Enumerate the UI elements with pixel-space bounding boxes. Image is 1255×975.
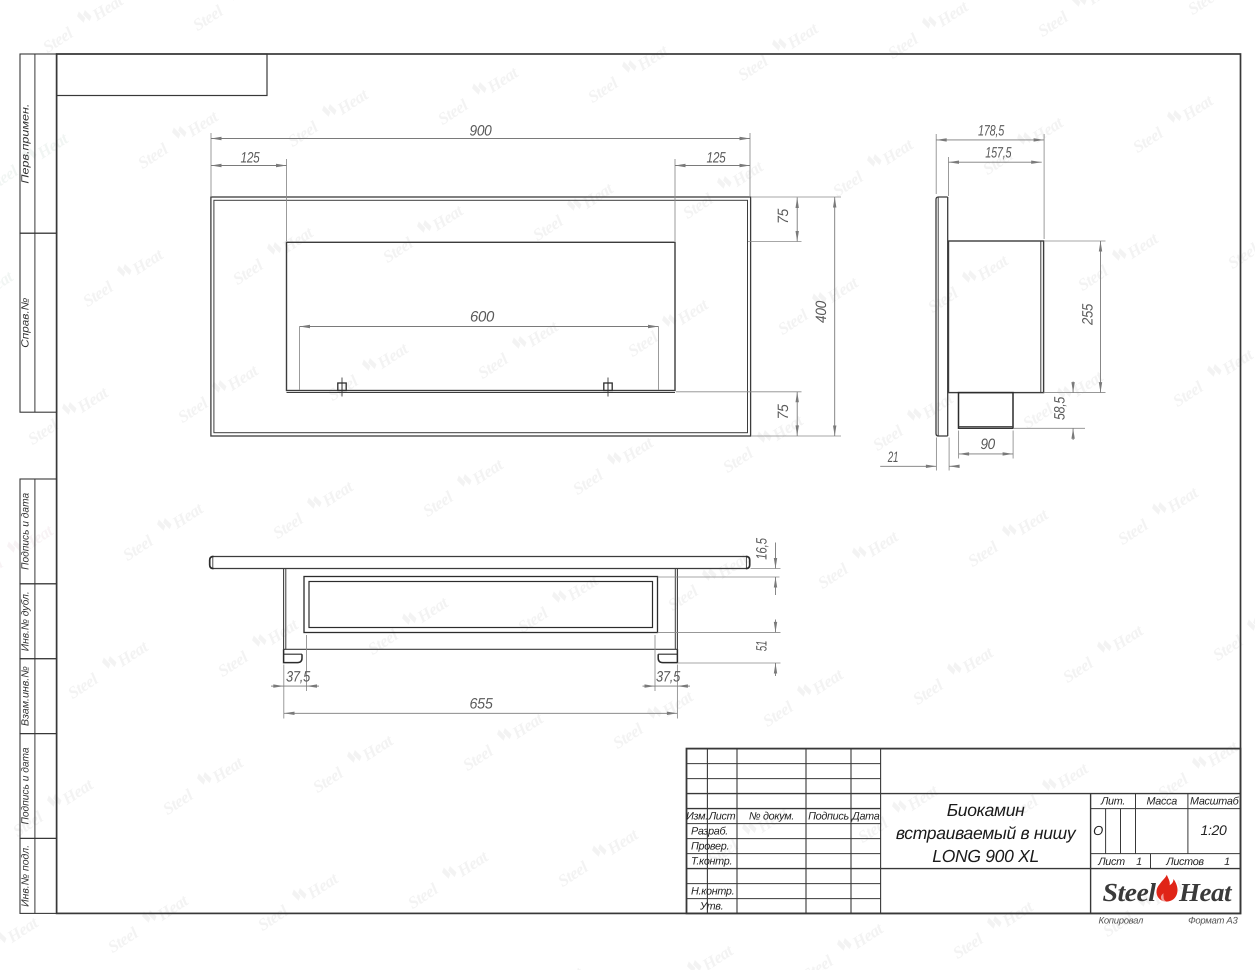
svg-text:655: 655: [470, 696, 494, 713]
svg-text:400: 400: [813, 300, 830, 323]
svg-text:75: 75: [775, 208, 792, 224]
svg-text:Взам.инв.№: Взам.инв.№: [21, 666, 32, 726]
svg-text:встраиваемый в нишу: встраиваемый в нишу: [896, 823, 1077, 843]
svg-text:900: 900: [470, 123, 493, 140]
svg-text:Биокамин: Биокамин: [947, 800, 1025, 820]
svg-text:125: 125: [707, 150, 727, 167]
svg-text:Формат А3: Формат А3: [1188, 916, 1238, 927]
svg-text:Лит.: Лит.: [1100, 796, 1125, 808]
svg-text:Перв.примен.: Перв.примен.: [21, 104, 32, 184]
svg-text:75: 75: [775, 404, 792, 420]
svg-text:21: 21: [887, 449, 898, 466]
svg-text:Steel: Steel: [1103, 878, 1157, 907]
svg-text:Подпись и дата: Подпись и дата: [21, 493, 32, 570]
svg-text:1:20: 1:20: [1200, 822, 1227, 838]
svg-text:Heat: Heat: [1178, 878, 1232, 907]
svg-text:Инв.№ подл.: Инв.№ подл.: [21, 845, 32, 907]
svg-text:Утв.: Утв.: [699, 900, 723, 912]
svg-text:37,5: 37,5: [286, 669, 311, 686]
svg-text:Разраб.: Разраб.: [691, 826, 728, 838]
svg-text:Н.контр.: Н.контр.: [691, 886, 734, 898]
svg-text:Изм.: Изм.: [686, 811, 708, 823]
svg-text:Масса: Масса: [1146, 796, 1177, 808]
svg-text:178,5: 178,5: [978, 123, 1005, 140]
svg-text:90: 90: [980, 436, 995, 453]
svg-text:37,5: 37,5: [656, 669, 681, 686]
svg-text:Лист: Лист: [1097, 856, 1125, 868]
svg-text:Провер.: Провер.: [691, 841, 729, 853]
svg-text:255: 255: [1080, 303, 1097, 326]
svg-text:125: 125: [241, 150, 261, 167]
svg-text:600: 600: [470, 309, 495, 326]
svg-text:51: 51: [754, 641, 771, 652]
svg-text:№ докум.: № докум.: [749, 811, 794, 823]
svg-text:Подпись: Подпись: [808, 811, 849, 823]
svg-text:16,5: 16,5: [754, 538, 771, 560]
svg-text:Инв.№ дубл.: Инв.№ дубл.: [21, 591, 32, 651]
svg-text:58,5: 58,5: [1052, 396, 1069, 420]
svg-text:Дата: Дата: [851, 811, 880, 823]
svg-text:Подпись и дата: Подпись и дата: [21, 747, 32, 824]
svg-text:Копировал: Копировал: [1099, 916, 1144, 927]
svg-text:157,5: 157,5: [985, 145, 1012, 162]
svg-text:Листов: Листов: [1165, 856, 1204, 868]
svg-text:Лист: Лист: [708, 811, 736, 823]
svg-text:1: 1: [1224, 856, 1230, 868]
svg-text:Масштаб: Масштаб: [1190, 796, 1240, 808]
svg-text:1: 1: [1136, 856, 1142, 868]
svg-text:LONG 900 XL: LONG 900 XL: [932, 846, 1039, 866]
svg-text:О: О: [1093, 823, 1103, 838]
svg-text:Справ.№: Справ.№: [21, 298, 32, 348]
svg-text:Т.контр.: Т.контр.: [691, 856, 732, 868]
